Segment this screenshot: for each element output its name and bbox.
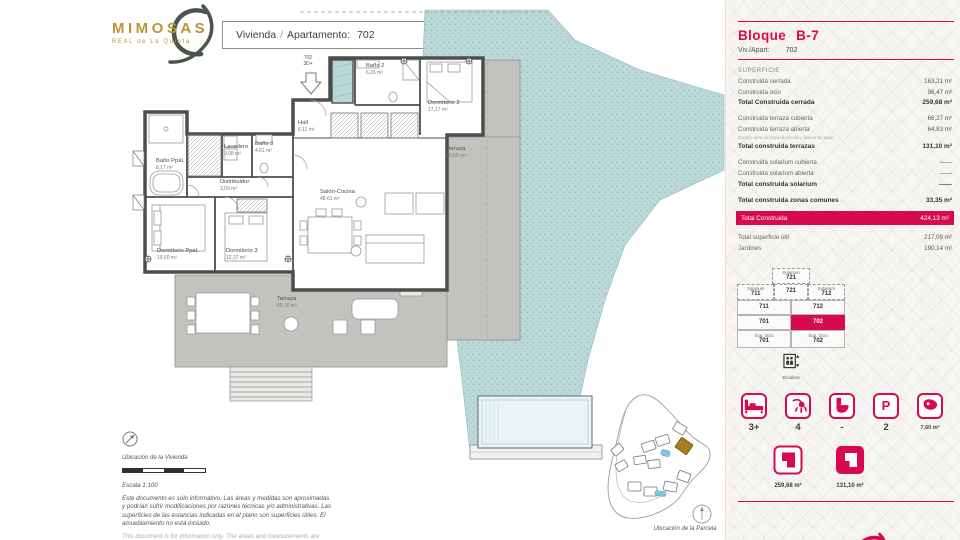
amenity-bathrooms: 4 xyxy=(780,393,816,433)
highlighted-block xyxy=(675,437,693,455)
unit-value: 702 xyxy=(786,47,798,54)
table-row-total: Total construida terrazas131,10 m² xyxy=(738,143,952,150)
stack-cell-solarium-721: Solarium721 xyxy=(772,268,810,284)
table-row: Total superficie útil217,09 m² xyxy=(738,234,952,241)
toilet-icon xyxy=(831,395,853,417)
table-row: Construida solarium cubierta—— xyxy=(738,159,952,166)
block-label: Bloque xyxy=(738,28,786,43)
location-parcel-label: Ubicación de la Parcela xyxy=(625,526,745,532)
amenities-row: 3+ 4 - P 2 xyxy=(736,393,948,433)
table-row: Jardines190,14 m² xyxy=(738,245,952,252)
disclaimer-es: Este documento es sólo informativo. Las … xyxy=(122,495,334,528)
table-row-total: Total Construida cerrada259,68 m² xyxy=(738,99,952,106)
terrace-area-plan-icon xyxy=(835,445,865,475)
divider xyxy=(738,21,954,22)
stairs-indicator: Escalera xyxy=(737,353,845,380)
mini-plan-terrace: 131,10 m² xyxy=(828,445,872,489)
table-footnote: (Incluye área de playa de piscina y lámi… xyxy=(738,135,952,140)
table-row: Construida solarium abierta—— xyxy=(738,170,952,177)
sidebar: BloqueB-7 Viv./Apart:702 SUPERFICIE Cons… xyxy=(725,0,960,540)
location-home-label: Ubicación de la Vivienda xyxy=(122,455,334,461)
table-row: Construida ocio96,47 m² xyxy=(738,89,952,96)
amenity-parking: P 2 xyxy=(868,393,904,433)
block-title: BloqueB-7 xyxy=(738,28,954,43)
compass-icon xyxy=(122,431,138,447)
table-row: Construida terraza abierta64,83 m² xyxy=(738,126,952,133)
amenity-bedrooms: 3+ xyxy=(736,393,772,433)
disclaimer-en: This document is for information only. T… xyxy=(122,533,334,540)
unit-line: Viv./Apart:702 xyxy=(738,47,954,54)
table-row-total: Total construida solarium—— xyxy=(738,181,952,188)
building-stack-diagram: Solarium721 Solarium711 721 Solarium712 … xyxy=(737,268,845,380)
stack-cell-712: 712 xyxy=(791,300,845,315)
mini-plan-closed: 259,68 m² xyxy=(766,445,810,489)
mini-plans: 259,68 m² 131,10 m² xyxy=(766,445,960,489)
pool-icon xyxy=(919,395,941,417)
stack-cell-711: 711 xyxy=(737,300,791,315)
stack-cell-701: 701 xyxy=(737,315,791,330)
stack-cell-ocio-702: Sup. Ocio702 xyxy=(791,330,845,348)
table-row: Construida cerrada163,21 m² xyxy=(738,78,952,85)
block-value: B-7 xyxy=(796,28,819,43)
parking-icon: P xyxy=(882,398,891,413)
table-section-title: SUPERFICIE xyxy=(738,68,954,74)
mimosas-brand-subtext: REAL de La Quinta xyxy=(112,39,208,45)
stack-cell-solarium-712: Solarium712 xyxy=(808,284,845,300)
table-row: Construida terraza cubierta66,27 m² xyxy=(738,115,952,122)
divider xyxy=(738,501,954,502)
stairs-label: Escalera xyxy=(737,375,845,380)
scale-label: Escala 1:100 xyxy=(122,482,334,489)
plan-sheet: MIMOSAS REAL de La Quinta Vivienda / Apa… xyxy=(0,0,960,540)
mimosas-brand-text: MIMOSAS xyxy=(112,20,208,37)
unit-label: Viv./Apart: xyxy=(738,47,770,54)
shower-icon xyxy=(787,395,809,417)
stack-cell-721: 721 xyxy=(774,284,807,300)
bed-icon xyxy=(743,395,765,417)
stack-cell-solarium-711: Solarium711 xyxy=(737,284,774,300)
real-q-icon xyxy=(844,528,902,540)
amenity-toilets: - xyxy=(824,393,860,433)
amenity-pool: 7,60 m² xyxy=(912,393,948,433)
stack-cell-ocio-701: Sup. Ocio701 xyxy=(737,330,791,348)
stack-cell-702-current: 702 xyxy=(791,315,845,330)
parcel-map xyxy=(598,388,733,538)
closed-area-plan-icon xyxy=(773,445,803,475)
scale-bar xyxy=(122,468,206,473)
table-row-grand-total: Total Construida424,13 m² xyxy=(736,211,954,225)
elevator-icon xyxy=(783,353,800,369)
table-row-total: Total construida zonas comunes33,35 m² xyxy=(738,197,952,204)
divider xyxy=(738,59,954,60)
footer-notes: Ubicación de la Vivienda Escala 1:100 Es… xyxy=(122,431,334,540)
mimosas-logo: MIMOSAS REAL de La Quinta xyxy=(112,20,208,45)
